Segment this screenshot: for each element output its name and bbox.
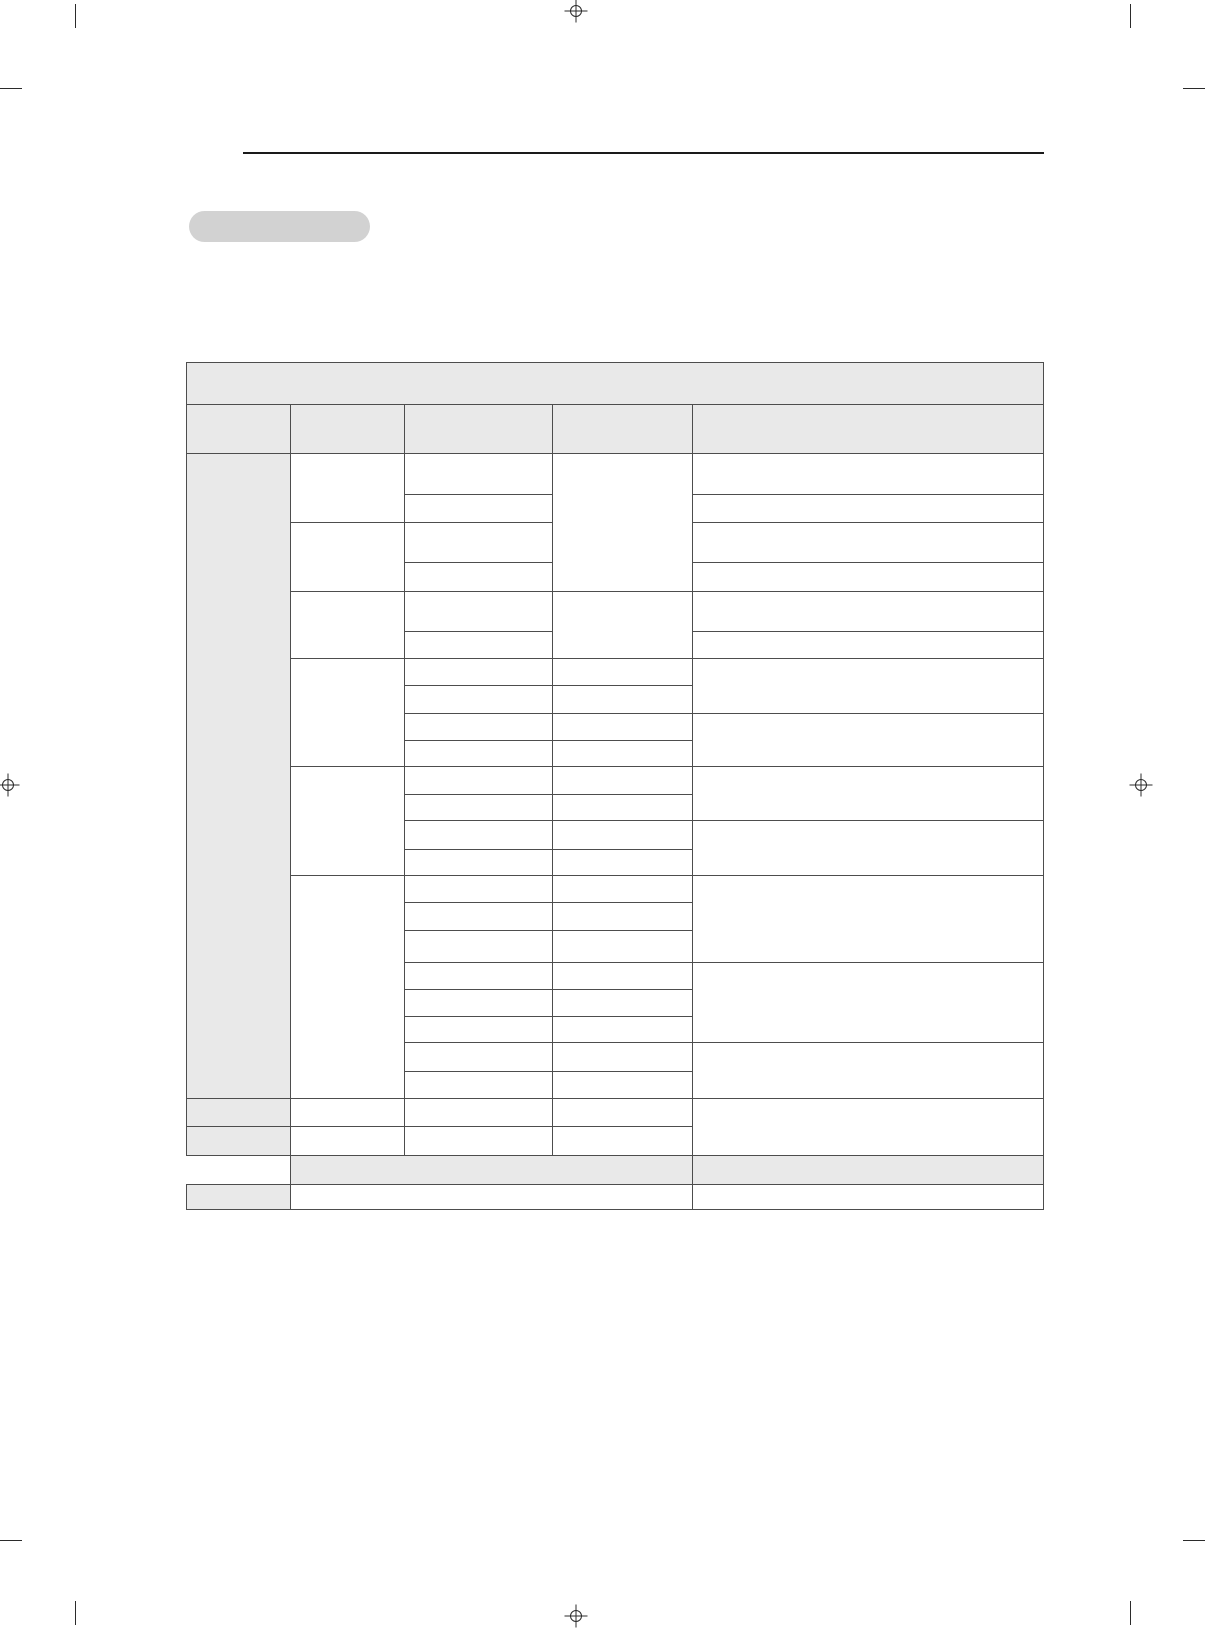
table-cell: [553, 741, 693, 767]
crop-tick-top-left-horizontal: [0, 88, 22, 89]
table-cell: [553, 876, 693, 903]
table-row: [187, 659, 1044, 686]
table-cell: [693, 523, 1044, 563]
table-cell: [693, 1156, 1044, 1185]
crop-tick-top-right-horizontal: [1183, 88, 1205, 89]
table-cell: [553, 1043, 693, 1072]
table-cell: [693, 821, 1044, 876]
table-cell: [693, 1099, 1044, 1156]
table-cell: [693, 714, 1044, 767]
table-cell: [553, 659, 693, 686]
table-cell: [405, 876, 553, 903]
table-cell: [405, 495, 553, 523]
table-cell: [553, 963, 693, 990]
table-cell: [405, 686, 553, 714]
table-cell: [291, 1156, 693, 1185]
table-cell: [553, 1127, 693, 1156]
table-header-row: [187, 405, 1044, 454]
table-header-cell: [405, 405, 553, 454]
table-row: [187, 876, 1044, 903]
table-cell: [553, 990, 693, 1017]
manual-page: [0, 0, 1205, 1630]
table-cell: [405, 563, 553, 592]
table-cell: [693, 454, 1044, 495]
table-cell: [187, 1099, 291, 1127]
table-header-cell: [553, 405, 693, 454]
table-cell: [693, 659, 1044, 714]
table-cell: [553, 903, 693, 931]
table-row: [187, 767, 1044, 795]
table-cell: [553, 714, 693, 741]
table-cell: [291, 1127, 405, 1156]
table-cell: [405, 821, 553, 850]
table-header-row: [187, 363, 1044, 405]
table-cell: [405, 1043, 553, 1072]
table-cell: [291, 523, 405, 592]
table-cell: [693, 1043, 1044, 1099]
table-cell: [553, 795, 693, 821]
table-cell: [553, 821, 693, 850]
table-cell: [291, 659, 405, 767]
table-cell: [291, 454, 405, 523]
table-cell: [693, 495, 1044, 523]
table-cell: [693, 592, 1044, 632]
table-cell: [553, 767, 693, 795]
table-cell: [553, 1072, 693, 1099]
table-cell: [405, 903, 553, 931]
header-rule: [243, 152, 1044, 154]
table-cell: [405, 523, 553, 563]
table-cell: [553, 850, 693, 876]
table-cell: [553, 592, 693, 659]
table-header-cell: [693, 405, 1044, 454]
table-cell: [187, 1127, 291, 1156]
table-cell: [187, 454, 291, 1099]
crop-tick-top-right-vertical: [1130, 4, 1131, 28]
table-cell: [693, 1185, 1044, 1210]
table-header-cell: [187, 405, 291, 454]
registration-crosshair-right-middle: [1129, 773, 1153, 797]
table-header-cell: [187, 363, 1044, 405]
table-cell: [405, 714, 553, 741]
table-cell: [693, 563, 1044, 592]
table-cell: [291, 1185, 693, 1210]
table-cell: [187, 1185, 291, 1210]
registration-crosshair-left-middle: [0, 773, 20, 797]
crop-tick-bottom-right-vertical: [1130, 1601, 1131, 1625]
table-cell: [405, 795, 553, 821]
table-cell: [405, 767, 553, 795]
table-cell: [405, 1127, 553, 1156]
table-row: [187, 1185, 1044, 1210]
table-cell: [553, 1017, 693, 1043]
table-row: [187, 1099, 1044, 1127]
table-cell: [291, 1099, 405, 1127]
table-cell: [693, 963, 1044, 1043]
table-cell: [553, 1099, 693, 1127]
table-row: [187, 1156, 1044, 1185]
table-header-cell: [291, 405, 405, 454]
table-cell: [291, 876, 405, 1099]
table-cell: [405, 963, 553, 990]
table-cell: [405, 659, 553, 686]
spec-table: [186, 362, 1044, 1210]
table-cell: [405, 1072, 553, 1099]
crop-tick-bottom-left-vertical: [75, 1601, 76, 1625]
crop-tick-top-left-vertical: [75, 4, 76, 28]
table-cell: [693, 632, 1044, 659]
table-cell: [405, 592, 553, 632]
table-cell: [693, 767, 1044, 821]
table-row: [187, 592, 1044, 632]
crop-tick-bottom-right-horizontal: [1183, 1540, 1205, 1541]
table-cell: [693, 876, 1044, 963]
table-cell: [553, 931, 693, 963]
table-cell: [405, 850, 553, 876]
table-cell: [405, 1099, 553, 1127]
section-label-pill: [189, 211, 370, 242]
table-ghost-cell: [187, 1156, 291, 1185]
registration-crosshair-bottom-center: [564, 1604, 588, 1628]
table-cell: [405, 741, 553, 767]
table-cell: [405, 931, 553, 963]
table-cell: [405, 990, 553, 1017]
table-cell: [405, 632, 553, 659]
crop-tick-bottom-left-horizontal: [0, 1540, 22, 1541]
table-cell: [405, 454, 553, 495]
table-row: [187, 454, 1044, 495]
table-cell: [553, 686, 693, 714]
table-cell: [553, 454, 693, 592]
registration-crosshair-top-center: [564, 0, 588, 23]
table-cell: [405, 1017, 553, 1043]
table-cell: [291, 592, 405, 659]
table-cell: [291, 767, 405, 876]
